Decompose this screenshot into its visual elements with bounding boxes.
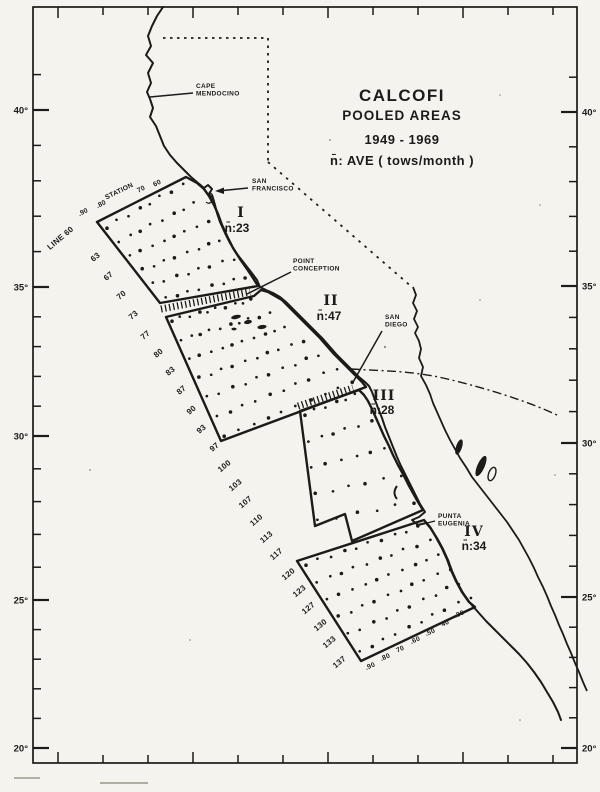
station-dot	[198, 310, 202, 314]
station-dot	[330, 556, 333, 559]
station-dot	[352, 566, 355, 569]
station-dot	[229, 322, 233, 326]
station-dot	[205, 395, 208, 398]
station-dot	[140, 267, 144, 271]
station-dot	[267, 373, 271, 377]
station-dot	[385, 617, 388, 620]
station-dot	[361, 604, 364, 607]
station-dot	[127, 215, 130, 218]
station-dot	[283, 326, 286, 329]
station-dot	[241, 404, 244, 407]
channel-island	[231, 328, 236, 331]
station-dot	[457, 601, 460, 604]
station-dot	[356, 455, 359, 458]
station-dot	[387, 573, 390, 576]
station-dot	[326, 598, 329, 601]
station-dot	[266, 351, 270, 355]
station-dot	[258, 316, 262, 320]
station-dot	[387, 593, 390, 596]
station-dot	[210, 350, 213, 353]
station-dot	[269, 311, 272, 314]
station-dot	[256, 357, 259, 360]
station-dot	[208, 265, 212, 269]
station-dot	[151, 281, 154, 284]
station-dot	[277, 349, 280, 352]
station-dot	[219, 328, 222, 331]
station-dot	[162, 280, 165, 283]
station-dot	[336, 614, 340, 618]
station-dot	[415, 545, 419, 549]
station-dot	[304, 563, 308, 567]
station-dot	[214, 306, 217, 309]
station-dot	[357, 425, 360, 428]
station-dot	[355, 547, 358, 550]
station-dot	[206, 311, 209, 314]
station-dot	[197, 267, 200, 270]
station-dot	[182, 183, 185, 186]
station-dot	[316, 518, 319, 521]
station-dot	[151, 244, 154, 247]
station-dot	[313, 408, 316, 411]
station-dot	[241, 340, 244, 343]
station-dot	[332, 490, 335, 493]
station-dot	[335, 517, 338, 520]
station-dot	[457, 583, 460, 586]
station-dot	[382, 477, 385, 480]
station-dot	[303, 413, 307, 417]
station-dot	[255, 376, 258, 379]
station-dot	[148, 203, 151, 206]
station-dot	[224, 306, 228, 310]
area-I-average-tows: n̄:23	[225, 221, 250, 235]
station-dot	[321, 435, 324, 438]
station-dot	[337, 593, 341, 597]
station-dot	[317, 354, 320, 357]
station-dot	[290, 343, 293, 346]
station-dot	[222, 434, 226, 438]
station-dot	[158, 194, 161, 197]
station-dot	[222, 283, 225, 286]
station-dot	[416, 524, 420, 528]
station-dot	[425, 559, 428, 562]
station-dot	[307, 378, 311, 382]
station-dot	[172, 211, 176, 215]
station-dot	[400, 590, 403, 593]
station-dot	[188, 315, 191, 318]
station-dot	[344, 399, 347, 402]
latitude-label: 20°	[582, 744, 597, 755]
station-dot	[221, 347, 224, 350]
station-dot	[153, 265, 156, 268]
station-dot	[340, 572, 344, 576]
station-dot	[175, 274, 179, 278]
station-dot	[346, 632, 349, 635]
station-dot	[407, 625, 411, 629]
latitude-label: 40°	[582, 108, 597, 119]
station-dot	[449, 568, 453, 572]
station-dot	[372, 620, 376, 624]
station-dot	[221, 260, 224, 263]
station-dot	[273, 330, 276, 333]
station-dot	[382, 638, 385, 641]
station-dot	[405, 531, 408, 534]
station-dot	[237, 428, 240, 431]
station-dot	[264, 332, 268, 336]
station-dot	[210, 283, 214, 287]
station-dot	[422, 598, 425, 601]
station-dot	[242, 302, 245, 305]
station-dot	[310, 466, 313, 469]
station-dot	[394, 633, 397, 636]
station-dot	[149, 223, 152, 226]
station-dot	[161, 219, 164, 222]
latitude-label: 25°	[582, 593, 597, 604]
station-dot	[233, 258, 236, 261]
station-dot	[253, 423, 256, 426]
station-dot	[336, 368, 339, 371]
station-dot	[170, 319, 174, 323]
area-IV-average-tows: n̄:34	[462, 539, 487, 553]
station-dot	[230, 365, 234, 369]
station-dot	[244, 359, 247, 362]
station-dot	[207, 220, 211, 224]
station-dot	[394, 533, 397, 536]
station-dot	[197, 353, 201, 357]
station-dot	[129, 254, 132, 257]
station-dot	[254, 400, 257, 403]
station-dot	[369, 451, 373, 455]
station-dot	[372, 600, 376, 604]
station-dot	[243, 276, 247, 280]
station-dot	[302, 340, 306, 344]
station-dot	[105, 226, 109, 230]
station-dot	[186, 251, 189, 254]
station-dot	[281, 366, 284, 369]
station-dot	[163, 240, 166, 243]
station-dot	[196, 225, 199, 228]
station-dot	[304, 356, 308, 360]
station-dot	[371, 645, 375, 649]
station-dot	[307, 440, 310, 443]
station-dot	[280, 411, 283, 414]
station-dot	[366, 541, 369, 544]
station-dot	[183, 230, 186, 233]
figure-units-note: n̄: AVE ( tows/month )	[330, 153, 474, 168]
latitude-label: 25°	[14, 596, 29, 607]
station-dot	[410, 582, 414, 586]
station-dot	[244, 383, 247, 386]
station-dot	[172, 235, 176, 239]
station-dot	[408, 605, 412, 609]
station-dot	[380, 539, 384, 543]
paper-background	[0, 0, 600, 792]
station-dot	[190, 334, 193, 337]
station-dot	[390, 554, 393, 557]
station-dot	[435, 594, 438, 597]
station-dot	[376, 509, 379, 512]
station-dot	[232, 278, 235, 281]
station-dot	[420, 621, 423, 624]
station-dot	[197, 375, 201, 379]
station-dot	[182, 208, 185, 211]
station-dot	[249, 297, 253, 301]
station-dot	[324, 393, 327, 396]
area-I-numeral: I	[237, 205, 245, 221]
station-dot	[436, 572, 439, 575]
station-dot	[343, 427, 346, 430]
station-dot	[324, 406, 327, 409]
area-III-average-tows: n̄:28	[370, 403, 395, 417]
latitude-label: 30°	[582, 439, 597, 450]
station-dot	[217, 392, 220, 395]
station-dot	[198, 333, 202, 337]
station-dot	[335, 400, 339, 404]
calcofi-pooled-areas-map: 40°35°30°25°20° 40°35°30°25°20° LINE 606…	[0, 0, 600, 792]
station-dot	[138, 230, 142, 234]
station-dot	[207, 242, 211, 246]
station-dot	[238, 322, 241, 325]
station-dot	[247, 317, 250, 320]
area-II-average-tows: n̄:47	[317, 309, 342, 323]
station-dot	[443, 608, 447, 612]
station-dot	[400, 475, 403, 478]
station-dot	[422, 579, 425, 582]
area-IV-numeral: IV	[464, 524, 484, 540]
figure-title: CALCOFI	[359, 86, 445, 105]
station-dot	[331, 432, 335, 436]
area-II-numeral: II	[323, 293, 338, 309]
station-dot	[401, 569, 404, 572]
station-dot	[253, 337, 256, 340]
station-dot	[117, 241, 120, 244]
station-dot	[313, 492, 317, 496]
station-dot	[173, 256, 177, 260]
station-dot	[267, 416, 271, 420]
station-dot	[396, 609, 399, 612]
station-dot	[343, 549, 347, 553]
figure-subtitle: POOLED AREAS	[342, 108, 462, 123]
latitude-label: 35°	[582, 282, 597, 293]
station-dot	[323, 462, 327, 466]
station-dot	[412, 501, 416, 505]
station-dot	[115, 218, 118, 221]
station-dot	[337, 386, 340, 389]
station-dot	[198, 248, 201, 251]
station-dot	[437, 553, 440, 556]
latitude-label: 20°	[14, 744, 29, 755]
station-dot	[129, 234, 132, 237]
station-dot	[229, 410, 233, 414]
station-dot	[178, 315, 181, 318]
station-dot	[351, 588, 354, 591]
station-dot	[192, 201, 195, 204]
station-dot	[138, 249, 142, 253]
station-dot	[470, 597, 473, 600]
station-dot	[294, 405, 297, 408]
station-dot	[188, 357, 191, 360]
station-dot	[364, 583, 367, 586]
station-dot	[445, 586, 449, 590]
station-dot	[402, 548, 405, 551]
station-dot	[170, 190, 174, 194]
station-dot	[282, 389, 285, 392]
station-dot	[220, 368, 223, 371]
station-dot	[353, 392, 356, 395]
station-dot	[316, 557, 319, 560]
station-dot	[186, 290, 189, 293]
station-dot	[164, 296, 167, 299]
station-dot	[208, 329, 211, 332]
latitude-label: 35°	[14, 283, 29, 294]
station-dot	[379, 556, 383, 560]
station-dot	[363, 482, 367, 486]
station-dot	[375, 578, 379, 582]
station-dot	[139, 206, 143, 210]
station-dot	[294, 364, 297, 367]
area-III-numeral: III	[373, 388, 396, 404]
latitude-label: 40°	[14, 106, 29, 117]
station-dot	[230, 343, 234, 347]
station-dot	[350, 380, 354, 384]
station-dot	[294, 382, 297, 385]
station-dot	[322, 371, 325, 374]
latitude-label: 30°	[14, 432, 29, 443]
station-dot	[315, 581, 318, 584]
station-dot	[370, 419, 374, 423]
station-dot	[394, 503, 397, 506]
station-dot	[210, 373, 213, 376]
station-dot	[218, 240, 221, 243]
figure-years: 1949 - 1969	[365, 132, 440, 147]
station-dot	[176, 294, 180, 298]
station-dot	[383, 447, 386, 450]
station-dot	[366, 563, 369, 566]
station-dot	[162, 259, 165, 262]
station-dot	[414, 563, 418, 567]
station-dot	[197, 288, 200, 291]
station-dot	[268, 393, 272, 397]
station-dot	[329, 575, 332, 578]
station-dot	[340, 459, 343, 462]
station-dot	[358, 650, 361, 653]
station-dot	[231, 385, 235, 389]
station-dot	[350, 611, 353, 614]
station-dot	[187, 273, 190, 276]
station-dot	[358, 629, 361, 632]
station-dot	[180, 339, 183, 342]
station-dot	[431, 613, 434, 616]
station-dot	[356, 510, 360, 514]
station-dot	[429, 539, 432, 542]
station-dot	[216, 415, 219, 418]
station-dot	[347, 484, 350, 487]
station-dot	[309, 398, 313, 402]
station-dot	[234, 302, 237, 305]
